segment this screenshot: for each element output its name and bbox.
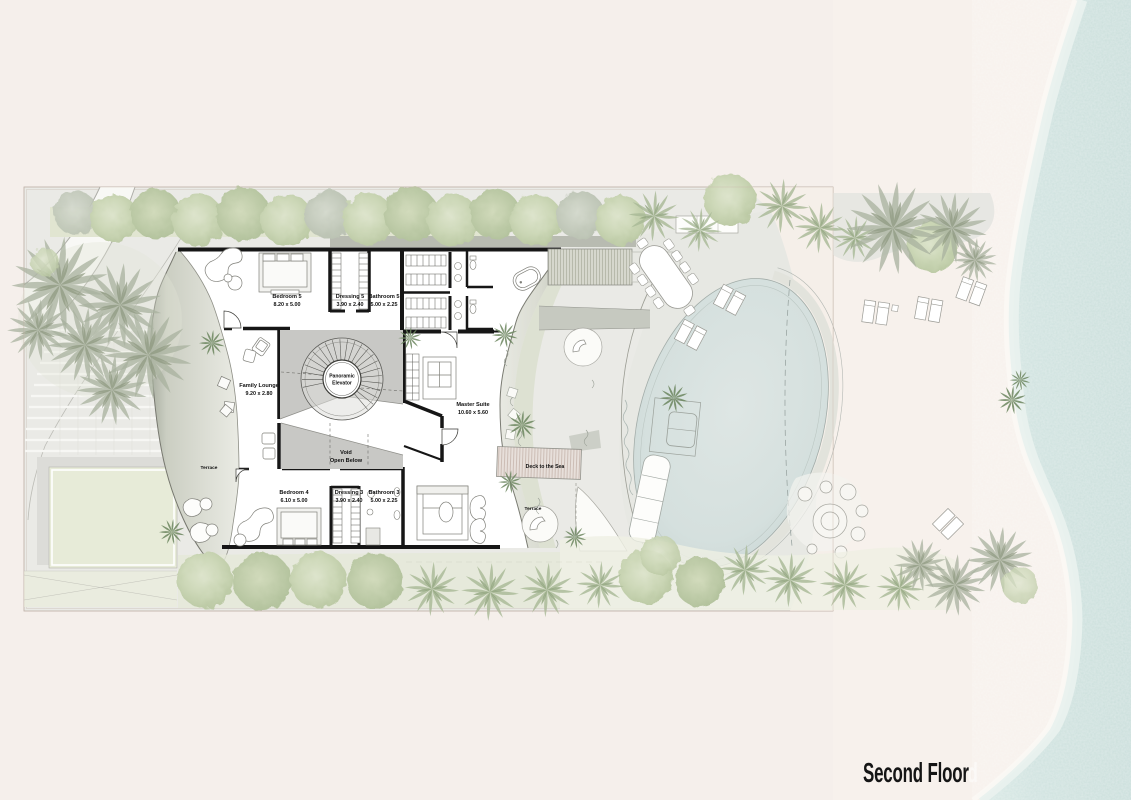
- svg-text:9.20 x 2.80: 9.20 x 2.80: [246, 391, 273, 397]
- svg-text:Bathroom 3: Bathroom 3: [368, 490, 399, 496]
- svg-text:Panoramic: Panoramic: [329, 374, 355, 380]
- svg-text:6.10 x 5.00: 6.10 x 5.00: [281, 498, 308, 504]
- svg-text:5.00 x 2.25: 5.00 x 2.25: [371, 498, 398, 504]
- svg-text:Void: Void: [340, 450, 352, 456]
- svg-text:5.00 x 2.25: 5.00 x 2.25: [371, 302, 398, 308]
- svg-text:Bedroom 4: Bedroom 4: [279, 490, 309, 496]
- svg-text:Terrace: Terrace: [525, 506, 542, 512]
- svg-text:Open Below: Open Below: [330, 458, 363, 464]
- svg-text:Family Lounge: Family Lounge: [239, 383, 278, 389]
- svg-text:8.20 x 5.00: 8.20 x 5.00: [274, 302, 301, 308]
- svg-text:Second Floor: Second Floor: [863, 757, 969, 788]
- svg-text:Elevator: Elevator: [332, 381, 352, 387]
- svg-text:Master Suite: Master Suite: [456, 402, 489, 408]
- svg-text:3.90 x 2.40: 3.90 x 2.40: [336, 498, 363, 504]
- svg-text:Deck to the Sea: Deck to the Sea: [526, 464, 565, 470]
- svg-text:Bathroom 5: Bathroom 5: [368, 294, 399, 300]
- svg-text:Dressing 3: Dressing 3: [335, 490, 364, 496]
- svg-text:Terrace: Terrace: [201, 465, 218, 471]
- svg-text:Bedroom 5: Bedroom 5: [272, 294, 301, 300]
- svg-text:d: d: [968, 757, 978, 788]
- svg-text:10.60 x 5.60: 10.60 x 5.60: [458, 410, 488, 416]
- svg-text:Dressing 5: Dressing 5: [336, 294, 365, 300]
- svg-text:3.90 x 2.40: 3.90 x 2.40: [337, 302, 364, 308]
